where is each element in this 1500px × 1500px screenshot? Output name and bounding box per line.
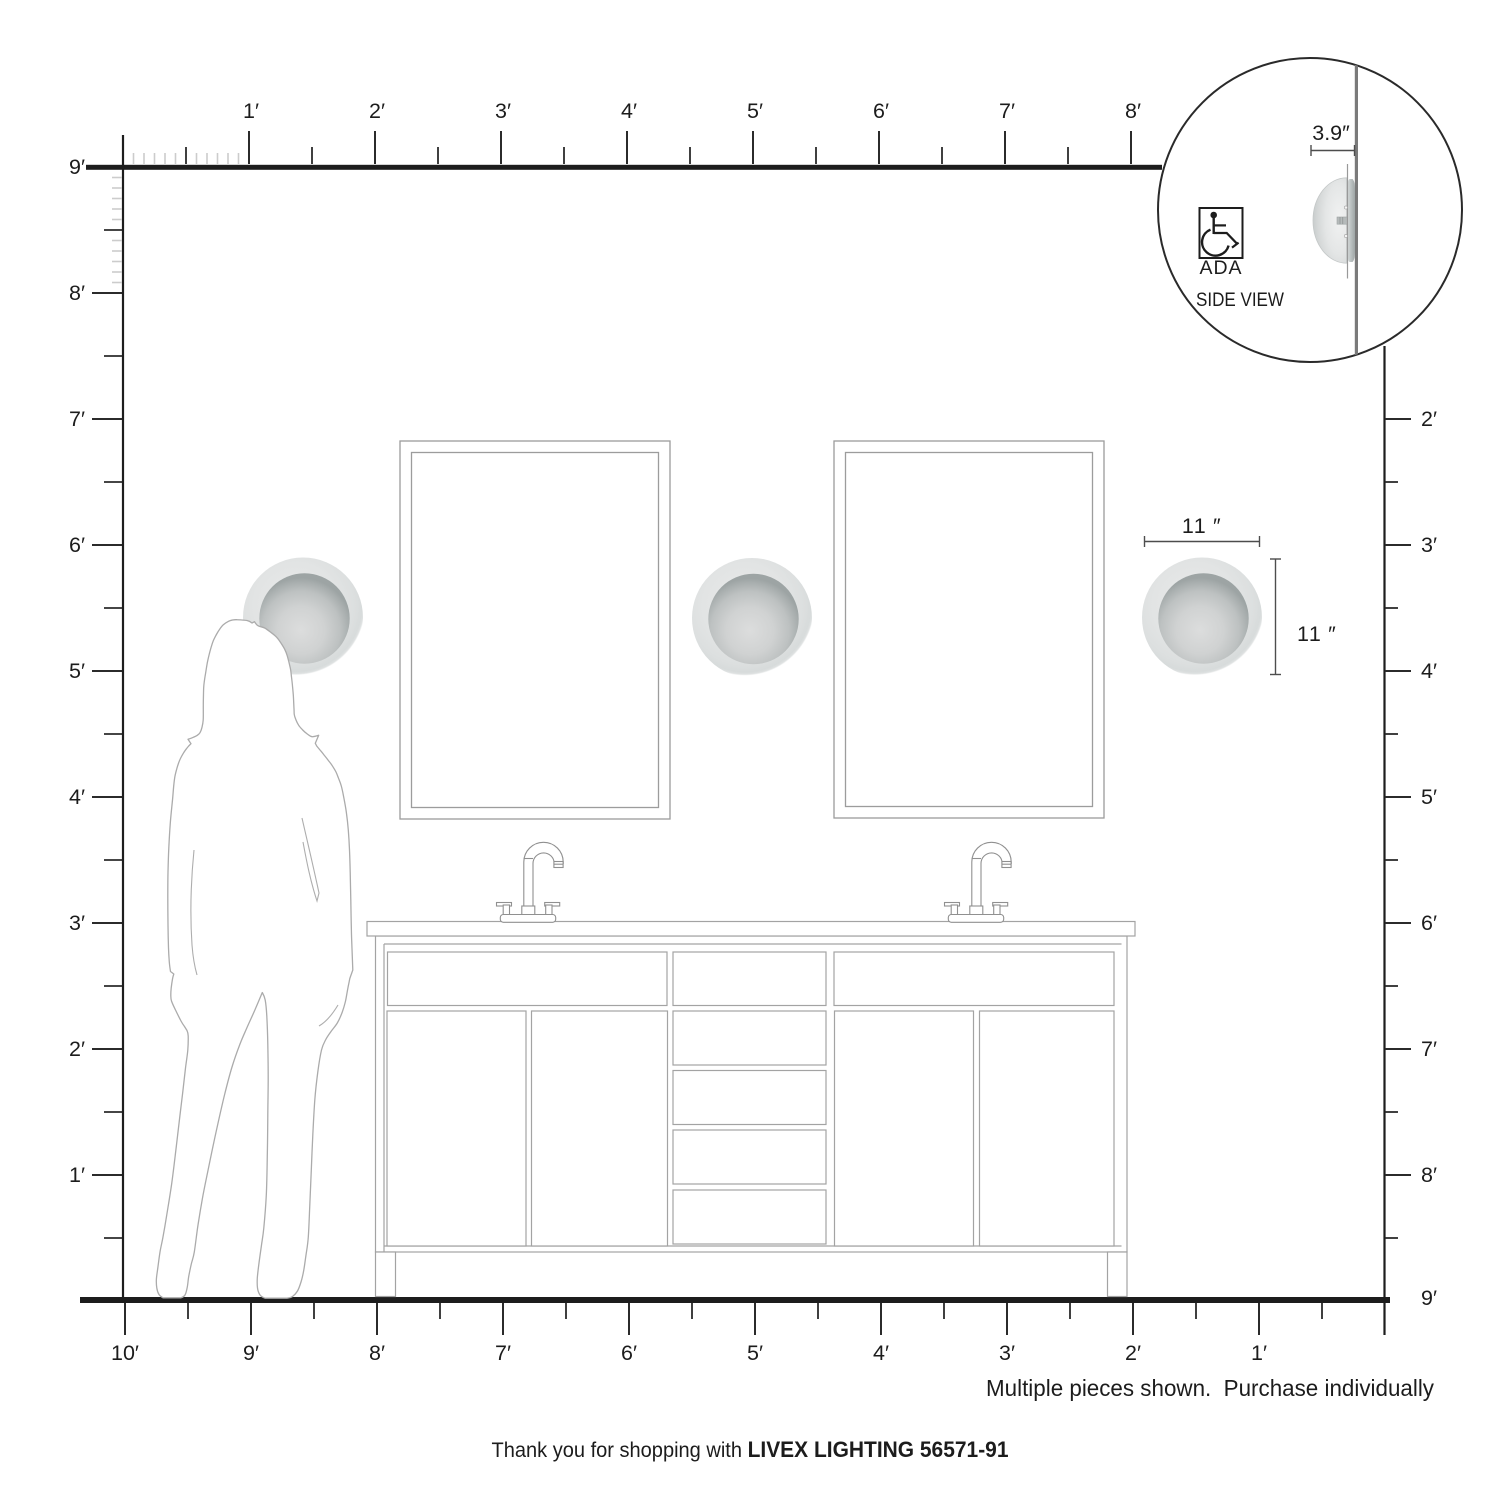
svg-text:1′: 1′	[69, 1163, 85, 1187]
svg-text:2′: 2′	[69, 1037, 85, 1061]
svg-text:6′: 6′	[621, 1341, 637, 1365]
svg-text:3′: 3′	[495, 99, 511, 123]
svg-text:7′: 7′	[69, 407, 85, 431]
svg-text:4′: 4′	[621, 99, 637, 123]
svg-text:6′: 6′	[69, 533, 85, 557]
svg-text:10′: 10′	[111, 1341, 139, 1365]
svg-text:Multiple pieces shown. Purcha: Multiple pieces shown. Purchase individu…	[986, 1375, 1434, 1401]
svg-text:9′: 9′	[69, 155, 85, 179]
svg-text:7′: 7′	[999, 99, 1015, 123]
svg-text:Thank you for shopping with LI: Thank you for shopping with LIVEX LIGHTI…	[492, 1437, 1009, 1462]
svg-text:5′: 5′	[747, 99, 763, 123]
svg-text:4′: 4′	[873, 1341, 889, 1365]
svg-text:2′: 2′	[1421, 407, 1437, 431]
svg-text:6′: 6′	[873, 99, 889, 123]
svg-text:9′: 9′	[1421, 1286, 1437, 1310]
svg-text:3′: 3′	[999, 1341, 1015, 1365]
svg-text:6′: 6′	[1421, 911, 1437, 935]
svg-text:SIDE VIEW: SIDE VIEW	[1196, 289, 1285, 311]
svg-text:9′: 9′	[243, 1341, 259, 1365]
svg-text:3.9″: 3.9″	[1312, 121, 1350, 145]
svg-text:1′: 1′	[243, 99, 259, 123]
svg-text:7′: 7′	[1421, 1037, 1437, 1061]
svg-text:8′: 8′	[69, 281, 85, 305]
svg-text:5′: 5′	[69, 659, 85, 683]
svg-text:11 ″: 11 ″	[1182, 514, 1222, 538]
svg-text:5′: 5′	[1421, 785, 1437, 809]
svg-text:2′: 2′	[1125, 1341, 1141, 1365]
svg-text:4′: 4′	[69, 785, 85, 809]
svg-text:2′: 2′	[369, 99, 385, 123]
svg-text:8′: 8′	[1125, 99, 1141, 123]
svg-text:7′: 7′	[495, 1341, 511, 1365]
svg-text:8′: 8′	[369, 1341, 385, 1365]
svg-text:8′: 8′	[1421, 1163, 1437, 1187]
svg-text:11 ″: 11 ″	[1297, 622, 1337, 646]
svg-text:4′: 4′	[1421, 659, 1437, 683]
svg-text:1′: 1′	[1251, 1341, 1267, 1365]
svg-text:3′: 3′	[69, 911, 85, 935]
svg-text:5′: 5′	[747, 1341, 763, 1365]
svg-text:3′: 3′	[1421, 533, 1437, 557]
svg-text:ADA: ADA	[1200, 257, 1244, 279]
